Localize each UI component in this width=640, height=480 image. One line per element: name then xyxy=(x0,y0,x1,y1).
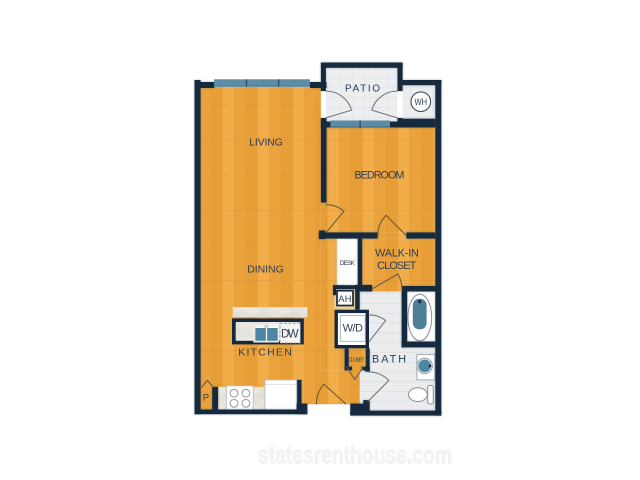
svg-text:WALK-IN: WALK-IN xyxy=(375,248,419,260)
svg-text:BEDROOM: BEDROOM xyxy=(354,170,404,182)
svg-text:BATH: BATH xyxy=(372,353,406,365)
svg-text:KITCHEN: KITCHEN xyxy=(238,347,292,359)
svg-text:WH: WH xyxy=(415,97,428,107)
svg-text:PATIO: PATIO xyxy=(345,84,380,95)
svg-text:LIVING: LIVING xyxy=(249,136,283,148)
svg-text:P: P xyxy=(203,392,209,403)
svg-text:statesrenthouse.com: statesrenthouse.com xyxy=(258,442,452,470)
svg-text:CLOSET: CLOSET xyxy=(348,358,364,364)
svg-text:DESK: DESK xyxy=(340,260,356,267)
svg-text:CLOSET: CLOSET xyxy=(377,260,416,272)
svg-text:DINING: DINING xyxy=(247,264,284,276)
svg-text:W/D: W/D xyxy=(343,323,363,335)
svg-text:DW: DW xyxy=(281,328,299,340)
svg-text:AH: AH xyxy=(338,294,351,304)
